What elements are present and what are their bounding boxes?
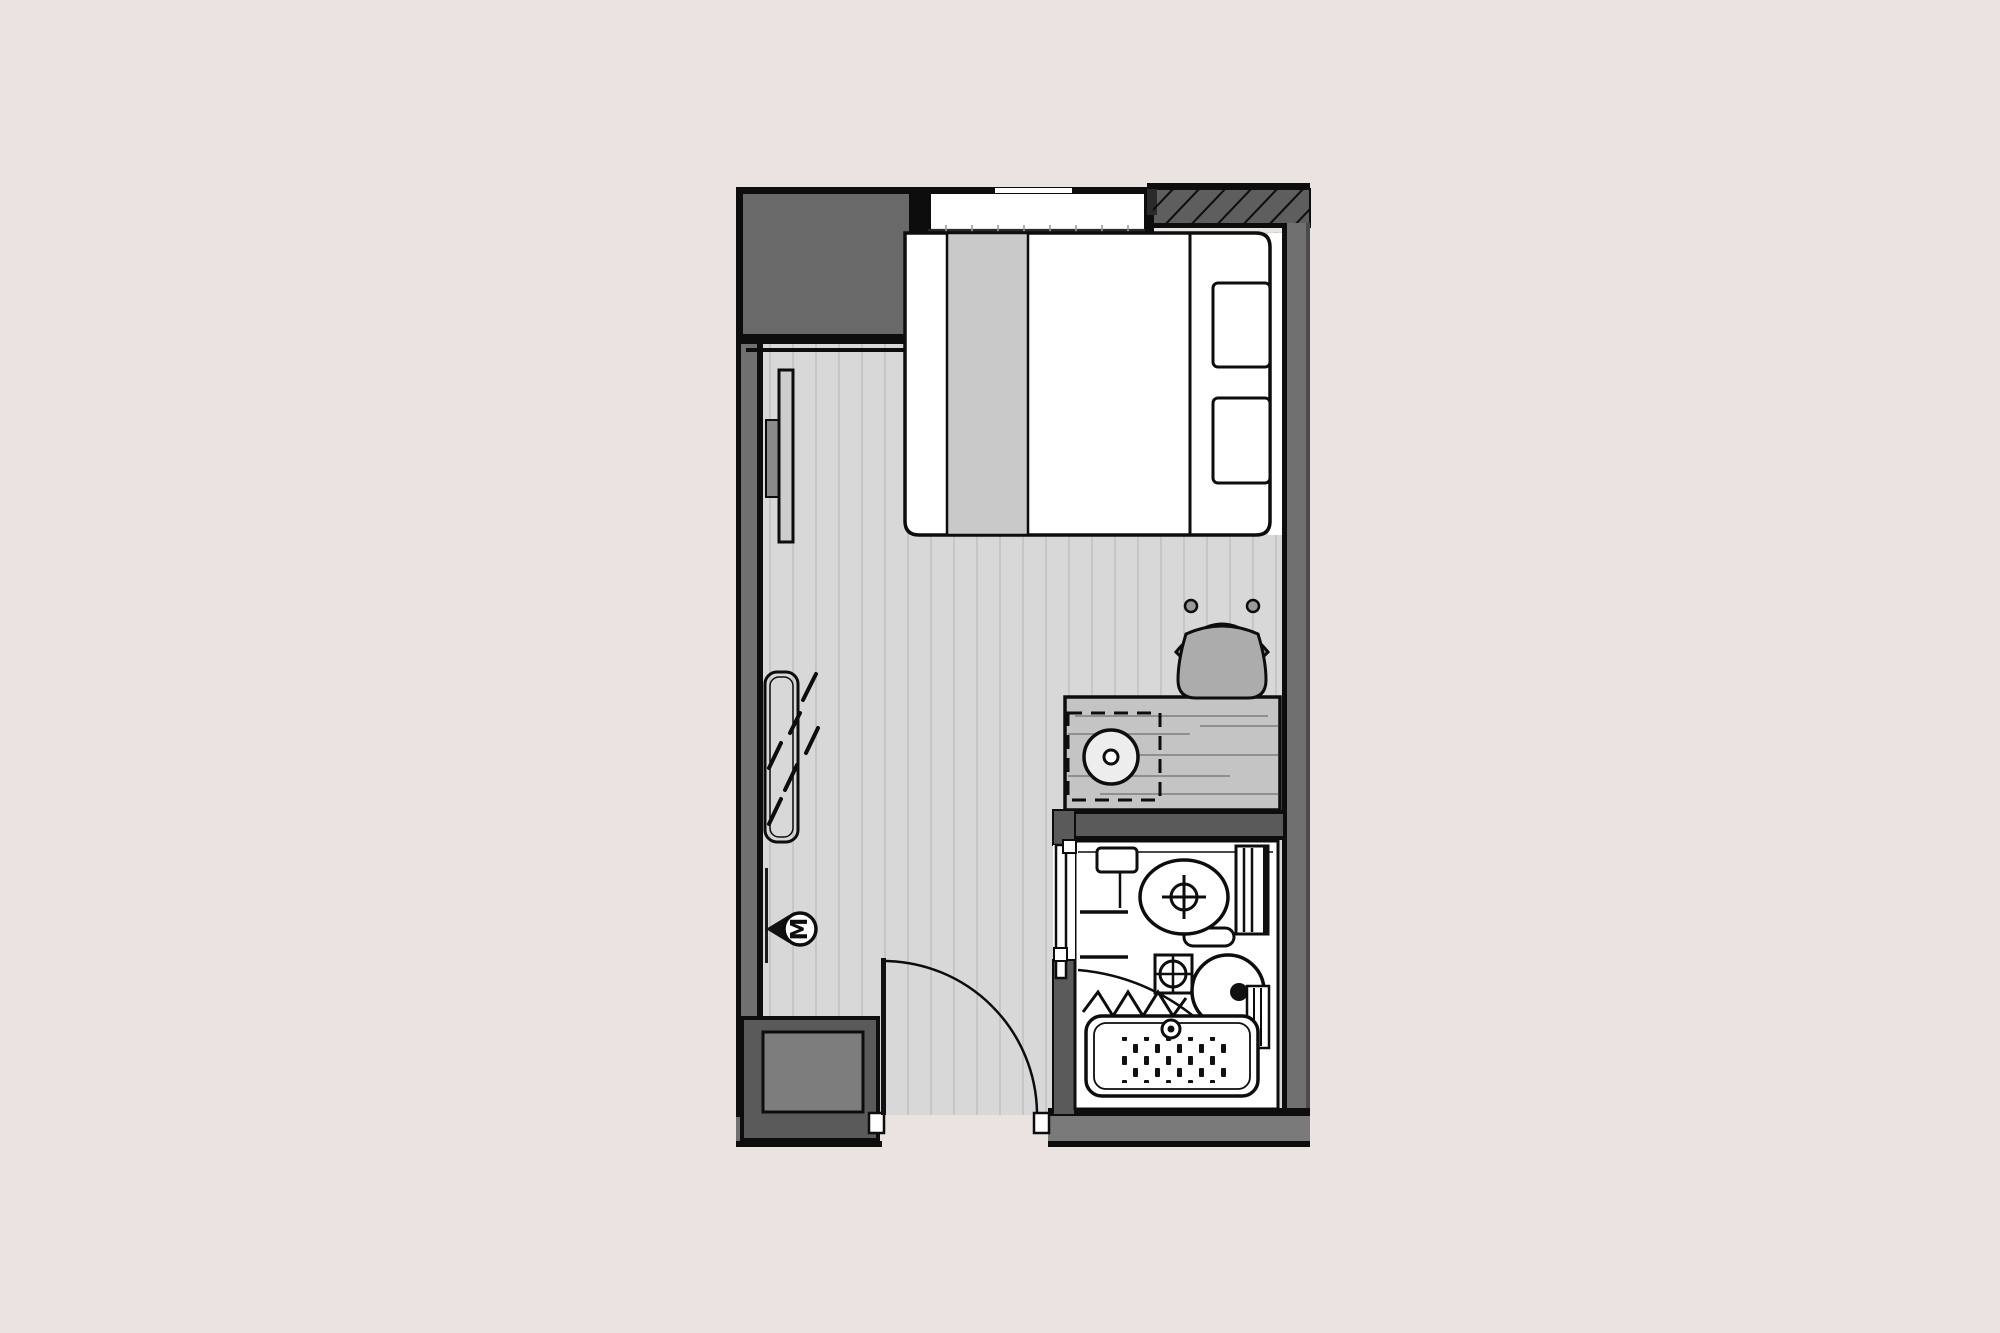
meter-label: M	[787, 918, 813, 941]
service-riser	[742, 1018, 878, 1140]
right-wall	[1282, 223, 1310, 1147]
wall-face-line	[765, 868, 768, 963]
tv-bracket	[766, 420, 779, 497]
chair-knob-right	[1247, 600, 1259, 612]
radiator-rail	[1236, 846, 1269, 934]
pillow-top	[1213, 283, 1270, 367]
wardrobe	[736, 187, 928, 352]
bottom-wall-right	[1048, 1108, 1310, 1147]
entry-door-leaf	[881, 958, 886, 1115]
hatched-wall	[1135, 183, 1331, 229]
anti-slip-dots	[1117, 1037, 1231, 1083]
shower-tray	[1086, 1016, 1258, 1096]
door-jamb-right	[1034, 1113, 1049, 1133]
bed-runner	[947, 233, 1028, 535]
double-bed	[905, 233, 1282, 535]
under-desk-stool	[1084, 730, 1138, 784]
bathroom	[1053, 810, 1283, 1115]
shelf	[1097, 848, 1137, 872]
floor-plan-page: M	[0, 0, 2000, 1333]
door-jamb-left	[869, 1113, 884, 1133]
chair-seat	[1178, 626, 1266, 698]
washbasin	[1155, 955, 1192, 993]
desk	[1065, 697, 1280, 810]
tv-screen	[779, 370, 793, 542]
chair-knob-left	[1185, 600, 1197, 612]
floor-plan-drawing: M	[0, 0, 2000, 1333]
pillow-bottom	[1213, 398, 1270, 483]
window	[922, 187, 1154, 235]
